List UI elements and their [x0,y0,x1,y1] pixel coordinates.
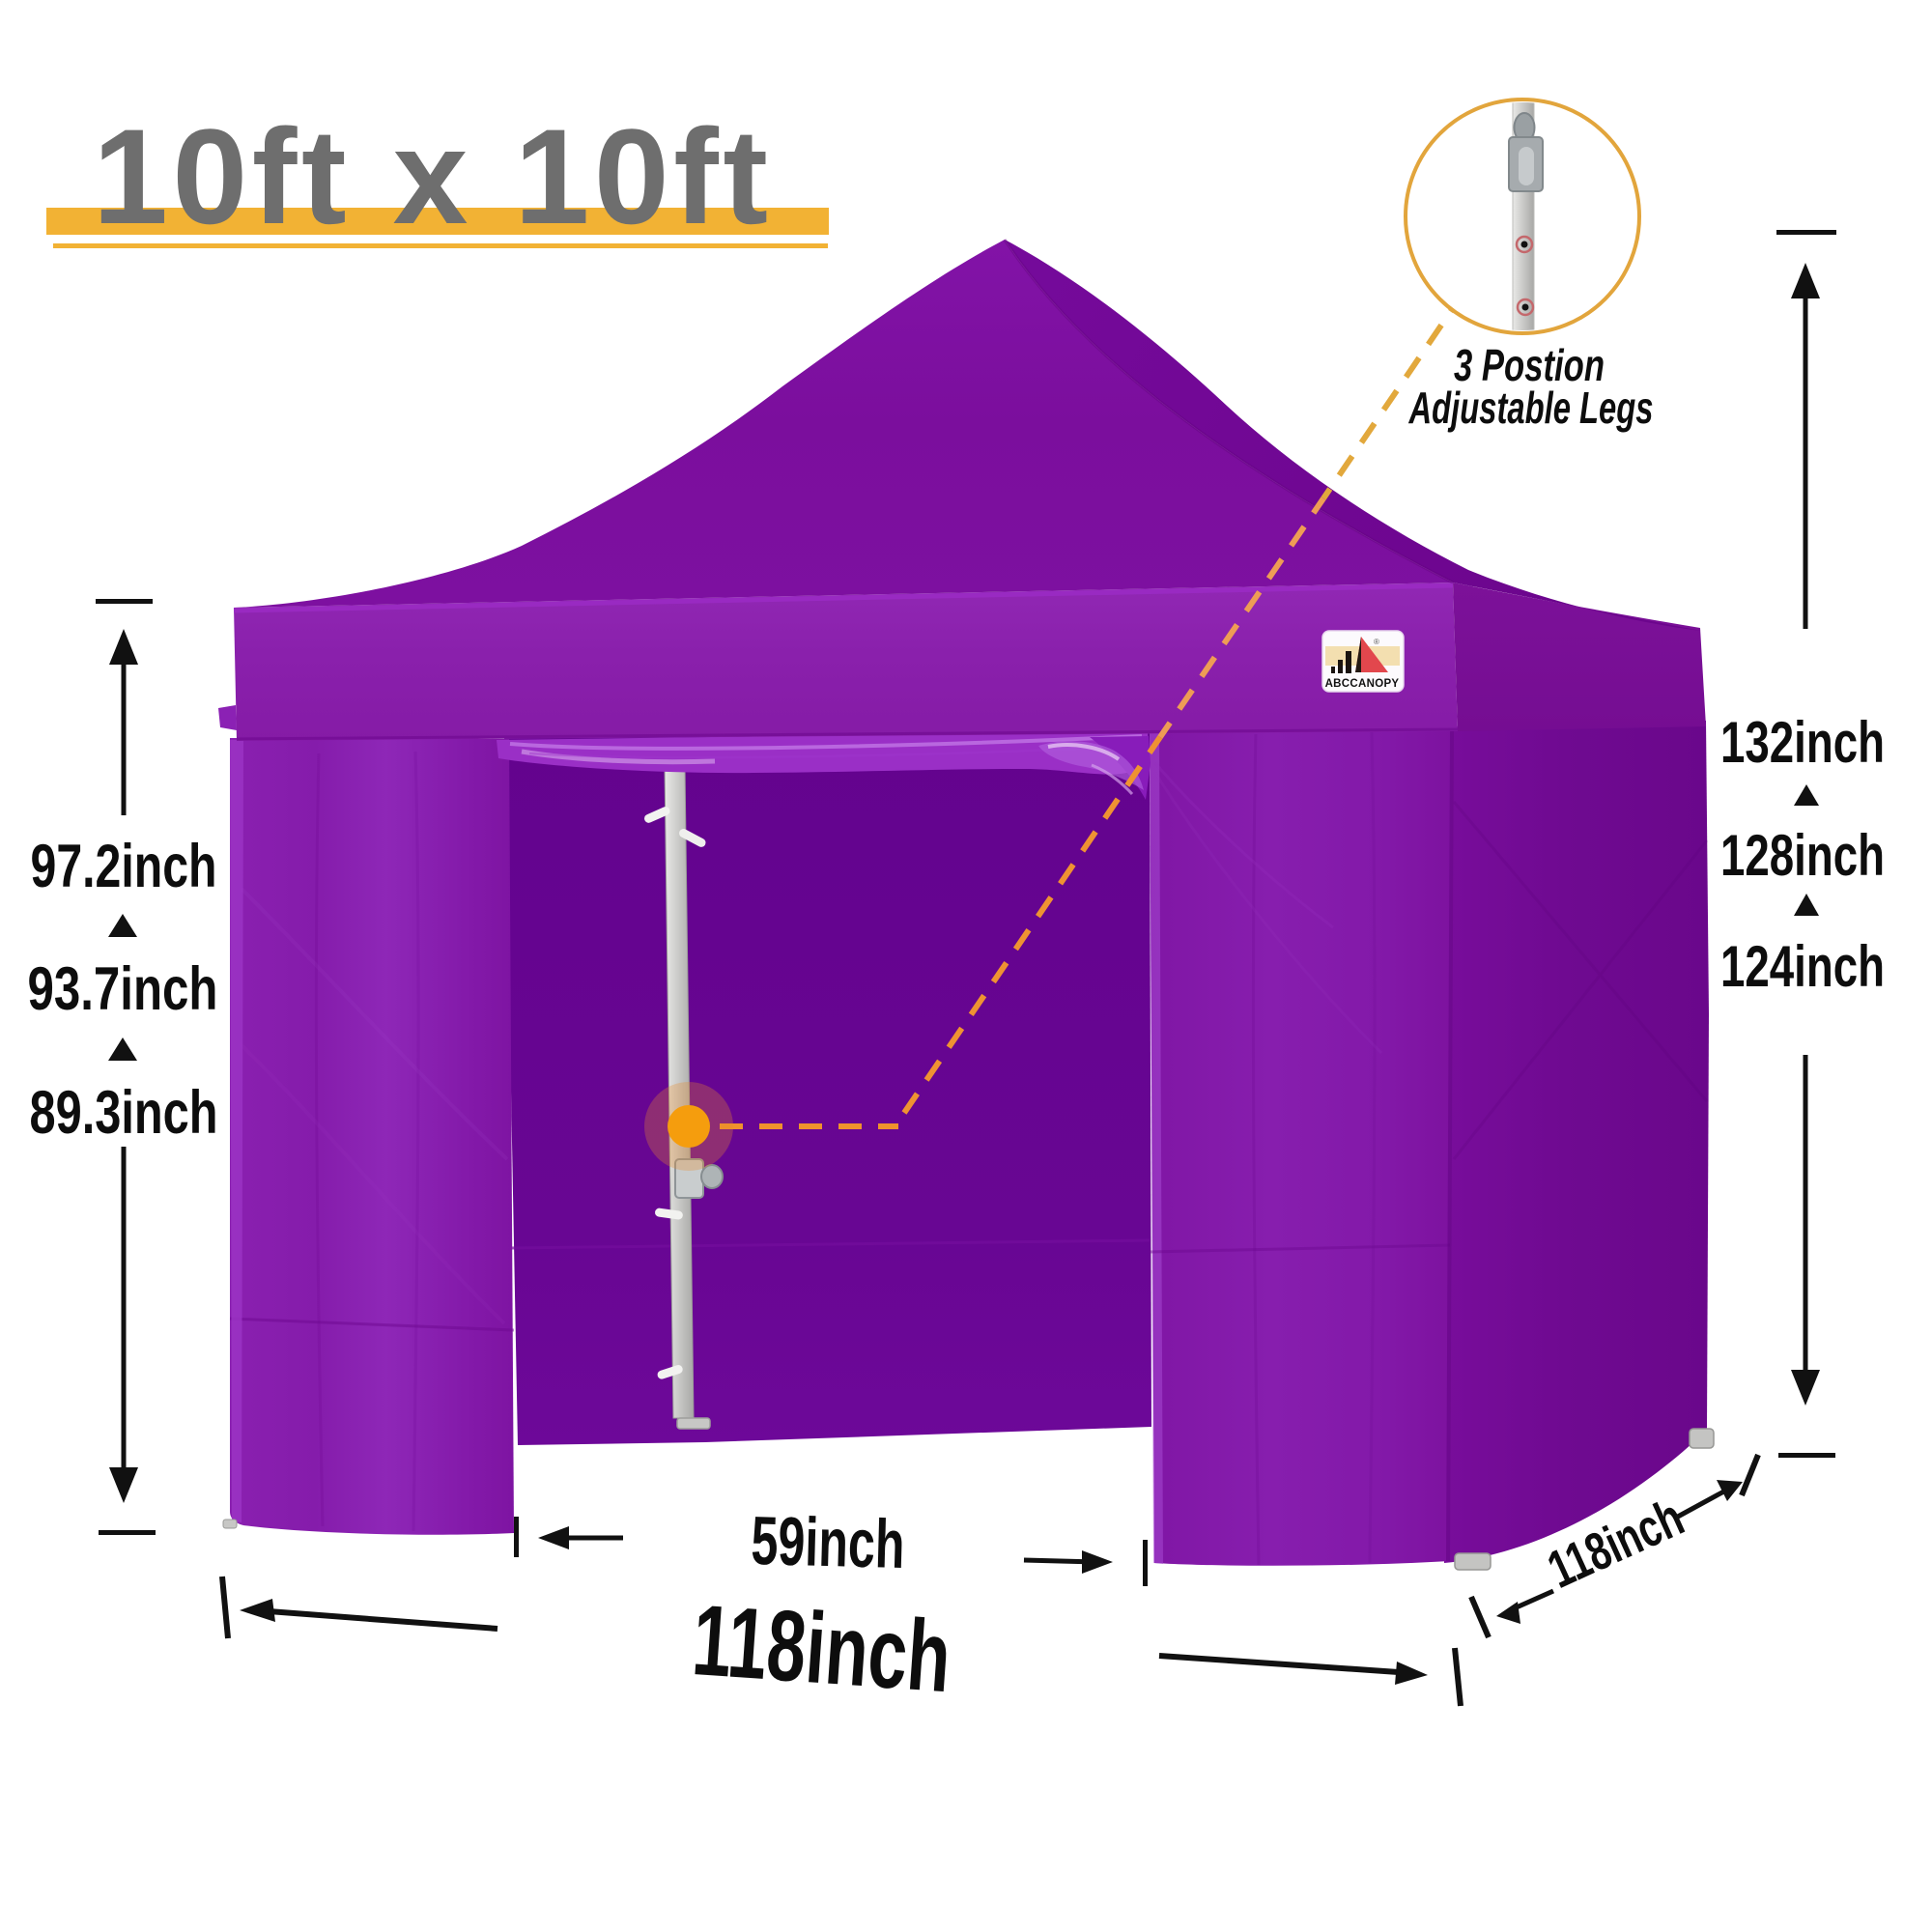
svg-text:59inch: 59inch [751,1503,906,1583]
svg-text:®: ® [1374,638,1379,646]
svg-text:ABCCANOPY: ABCCANOPY [1325,678,1400,690]
svg-text:Adjustable Legs: Adjustable Legs [1408,383,1654,433]
svg-text:118inch: 118inch [689,1584,953,1714]
svg-text:97.2inch: 97.2inch [31,833,217,900]
svg-text:10ft x 10ft: 10ft x 10ft [93,100,768,252]
svg-text:128inch: 128inch [1720,823,1885,888]
svg-text:89.3inch: 89.3inch [30,1079,218,1147]
svg-text:93.7inch: 93.7inch [28,955,218,1023]
svg-text:132inch: 132inch [1720,710,1885,775]
svg-text:124inch: 124inch [1720,934,1885,999]
